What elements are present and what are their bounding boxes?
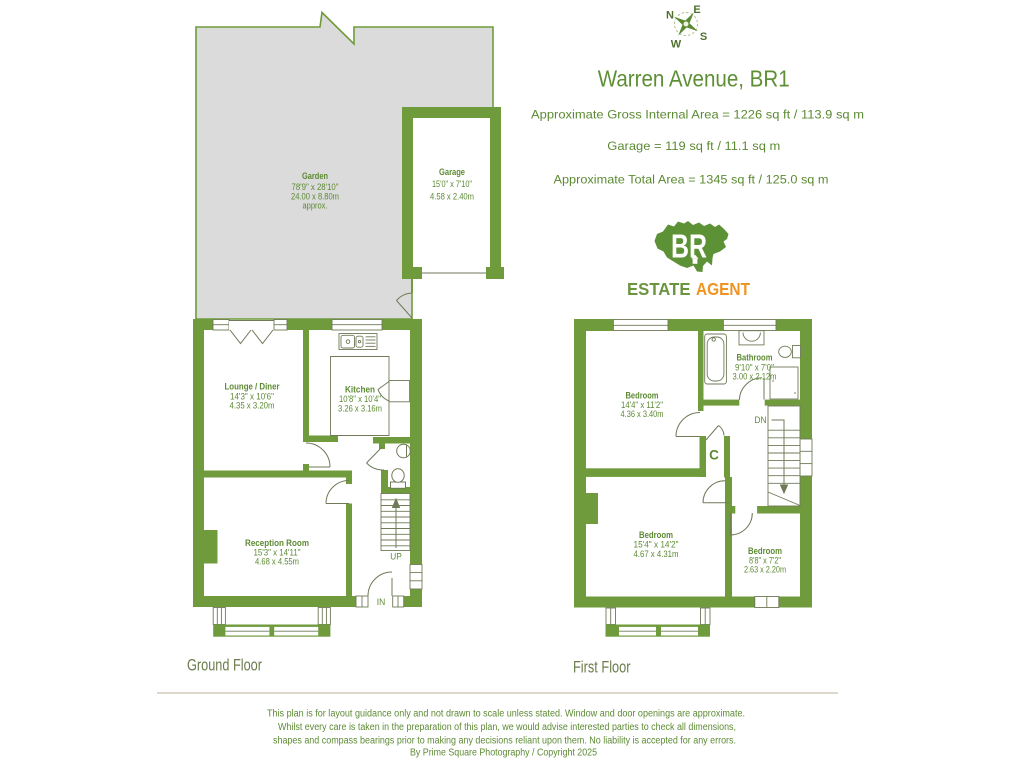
svg-text:4.68 x 4.55m: 4.68 x 4.55m [255, 556, 299, 567]
svg-text:UP: UP [390, 552, 402, 562]
svg-text:4.35 x 3.20m: 4.35 x 3.20m [230, 400, 275, 411]
svg-text:Garage: Garage [439, 166, 465, 177]
svg-text:DN: DN [755, 415, 767, 426]
svg-text:4.58 x 2.40m: 4.58 x 2.40m [430, 191, 474, 202]
svg-text:Garden: Garden [302, 170, 328, 181]
svg-text:Warren Avenue, BR1: Warren Avenue, BR1 [598, 66, 790, 92]
svg-text:BR: BR [671, 228, 707, 265]
svg-text:IN: IN [377, 597, 386, 607]
svg-text:4.67 x 4.31m: 4.67 x 4.31m [634, 548, 679, 559]
svg-text:Approximate Total Area = 1345: Approximate Total Area = 1345 sq ft / 12… [554, 173, 829, 187]
svg-text:S: S [700, 31, 707, 43]
svg-text:N: N [666, 10, 674, 22]
svg-text:By Prime Square Photography /: By Prime Square Photography / Copyright … [410, 748, 597, 759]
svg-text:4.36 x 3.40m: 4.36 x 3.40m [621, 408, 664, 419]
svg-text:AGENT: AGENT [696, 279, 750, 299]
svg-text:This plan is for layout guidan: This plan is for layout guidance only an… [267, 709, 745, 720]
svg-text:W: W [671, 39, 682, 51]
svg-text:Garage = 119 sq ft / 11.1 sq m: Garage = 119 sq ft / 11.1 sq m [607, 139, 780, 153]
svg-text:3.26 x 3.16m: 3.26 x 3.16m [338, 402, 382, 413]
svg-text:shapes and compass bearings pr: shapes and compass bearings prior to mak… [273, 736, 736, 747]
svg-text:C: C [709, 448, 719, 463]
svg-text:Whilst every care is taken in: Whilst every care is taken in the prepar… [278, 722, 736, 733]
svg-text:E: E [693, 4, 700, 16]
svg-text:3.00 x 2.12m: 3.00 x 2.12m [733, 370, 777, 381]
svg-text:Approximate Gross Internal Are: Approximate Gross Internal Area = 1226 s… [531, 108, 864, 122]
svg-text:First Floor: First Floor [573, 658, 631, 677]
svg-text:ESTATE: ESTATE [627, 279, 691, 299]
svg-text:Ground Floor: Ground Floor [187, 656, 262, 675]
svg-text:approx.: approx. [303, 200, 328, 211]
svg-text:15'0" x 7'10": 15'0" x 7'10" [432, 178, 472, 189]
svg-text:2.63 x 2.20m: 2.63 x 2.20m [744, 564, 786, 575]
